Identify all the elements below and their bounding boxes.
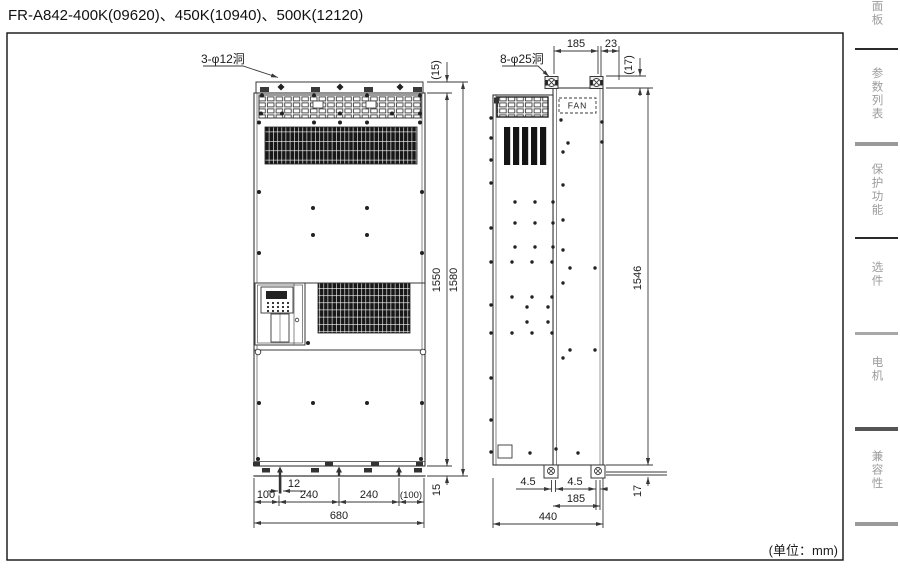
page-title: FR-A842-400K(09620)、450K(10940)、500K(121… xyxy=(8,7,363,24)
front-view xyxy=(253,82,426,494)
dimension-drawing: FR-A842-400K(09620)、450K(10940)、500K(121… xyxy=(0,0,900,568)
dim-front-bottom-offset: 15 xyxy=(431,484,443,496)
dim-front-chain-3: (100) xyxy=(400,490,422,501)
side-hole-label: 8-φ25洞 xyxy=(500,52,544,66)
front-bottom-slots xyxy=(277,467,402,477)
front-top-vent xyxy=(265,127,417,164)
tab-motor[interactable]: 电机 xyxy=(853,356,900,386)
front-hole-label: 3-φ12洞 xyxy=(201,52,245,66)
dim-side-foot-right: 4.5 xyxy=(567,476,582,488)
side-lugs xyxy=(545,77,603,89)
keypad-display xyxy=(266,291,287,299)
tab-protective-functions[interactable]: 保护功能 xyxy=(853,163,900,219)
dim-side-lug: (17) xyxy=(623,55,635,75)
tab-compatibility[interactable]: 兼容性 xyxy=(853,450,900,494)
dim-side-foot-height: 17 xyxy=(632,485,644,497)
tab-divider xyxy=(855,522,898,526)
tab-divider xyxy=(855,332,898,335)
side-view: FAN xyxy=(489,77,605,479)
tab-parameter-list[interactable]: 参数列表 xyxy=(853,67,900,123)
dim-side-depth: 440 xyxy=(539,511,557,523)
dim-side-top-rear: 23 xyxy=(605,38,617,50)
tab-operation-panel[interactable]: 操作面板 xyxy=(853,0,900,27)
dim-front-width: 680 xyxy=(330,510,348,522)
dim-front-chain-1: 240 xyxy=(300,489,318,501)
dim-side-foot-pitch: 185 xyxy=(567,493,585,505)
fan-label: FAN xyxy=(568,101,588,111)
dim-side-top-pitch: 185 xyxy=(567,38,585,50)
front-middle-vent xyxy=(318,283,410,333)
tab-divider xyxy=(855,237,898,239)
side-fins xyxy=(504,127,548,165)
tab-divider xyxy=(855,48,898,50)
operation-panel xyxy=(255,283,305,345)
dim-front-chain-2: 240 xyxy=(360,489,378,501)
manual-page: FR-A842-400K(09620)、450K(10940)、500K(121… xyxy=(0,0,900,568)
dim-side-height: 1546 xyxy=(632,266,644,290)
chapter-tabs: 操作面板 参数列表 保护功能 选件 电机 兼容性 xyxy=(853,0,900,568)
tab-options[interactable]: 选件 xyxy=(853,261,900,291)
tab-divider xyxy=(855,427,898,431)
dim-front-height-total: 1580 xyxy=(448,268,460,292)
dim-front-slot: 12 xyxy=(288,478,300,490)
tab-divider xyxy=(855,142,898,146)
dim-front-chain-0: 100 xyxy=(257,489,275,501)
unit-note: (单位：mm) xyxy=(769,543,838,558)
dim-side-foot-left: 4.5 xyxy=(520,476,535,488)
dim-front-height-inner: 1550 xyxy=(431,268,443,292)
dim-front-top-offset: (15) xyxy=(430,60,442,80)
